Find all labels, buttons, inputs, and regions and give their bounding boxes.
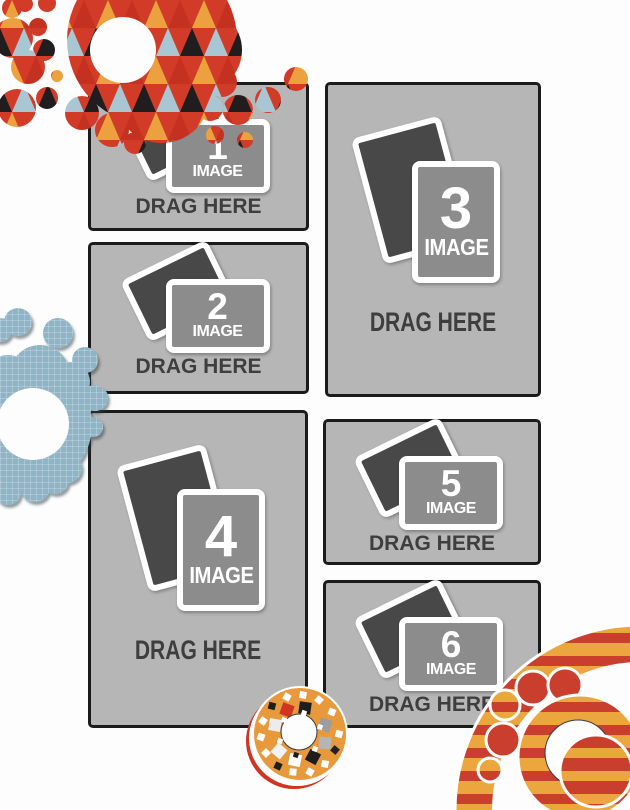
image-dropzone-6[interactable]: 6 IMAGE DRAG HERE bbox=[323, 580, 541, 728]
image-label: IMAGE bbox=[426, 500, 476, 518]
placeholder-number: 1 bbox=[207, 131, 228, 164]
image-dropzone-5[interactable]: 5 IMAGE DRAG HERE bbox=[323, 419, 541, 565]
image-label: IMAGE bbox=[426, 661, 476, 679]
image-label: IMAGE bbox=[193, 163, 243, 181]
image-label: IMAGE bbox=[193, 323, 243, 341]
photo-stack-icon: 5 IMAGE bbox=[357, 434, 507, 530]
drag-here-label: DRAG HERE bbox=[135, 195, 261, 219]
placeholder-number: 3 bbox=[440, 183, 472, 234]
photo-stack-icon: 1 IMAGE bbox=[124, 97, 274, 193]
photo-front-frame: 2 IMAGE bbox=[166, 279, 270, 353]
placeholder-number: 5 bbox=[441, 468, 462, 501]
placeholder-number: 6 bbox=[441, 629, 462, 662]
drag-here-label: DRAG HERE bbox=[369, 532, 495, 556]
photo-front-frame: 3 IMAGE bbox=[412, 161, 500, 283]
photo-stack-icon: 6 IMAGE bbox=[357, 595, 507, 691]
drag-here-label: DRAG HERE bbox=[135, 355, 261, 379]
image-dropzone-4[interactable]: 4 IMAGE DRAG HERE bbox=[88, 410, 308, 728]
photo-stack-icon: 4 IMAGE bbox=[123, 451, 273, 623]
drag-here-label: DRAG HERE bbox=[370, 307, 496, 338]
photo-front-frame: 1 IMAGE bbox=[166, 119, 270, 193]
image-label: IMAGE bbox=[424, 234, 488, 261]
image-dropzone-2[interactable]: 2 IMAGE DRAG HERE bbox=[88, 242, 309, 394]
placeholder-number: 2 bbox=[207, 291, 228, 324]
drag-here-label: DRAG HERE bbox=[135, 635, 261, 666]
photo-front-frame: 4 IMAGE bbox=[177, 489, 265, 611]
photo-stack-icon: 2 IMAGE bbox=[124, 257, 274, 353]
placeholder-number: 4 bbox=[205, 511, 237, 562]
collage-template-page: 1 IMAGE DRAG HERE 2 IMAGE DRAG HERE 3 IM… bbox=[0, 0, 630, 810]
image-label: IMAGE bbox=[189, 562, 253, 589]
image-dropzone-1[interactable]: 1 IMAGE DRAG HERE bbox=[88, 82, 309, 231]
photo-stack-icon: 3 IMAGE bbox=[358, 123, 508, 295]
photo-front-frame: 5 IMAGE bbox=[399, 456, 503, 530]
photo-front-frame: 6 IMAGE bbox=[399, 617, 503, 691]
image-dropzone-3[interactable]: 3 IMAGE DRAG HERE bbox=[325, 82, 541, 397]
drag-here-label: DRAG HERE bbox=[369, 693, 495, 717]
